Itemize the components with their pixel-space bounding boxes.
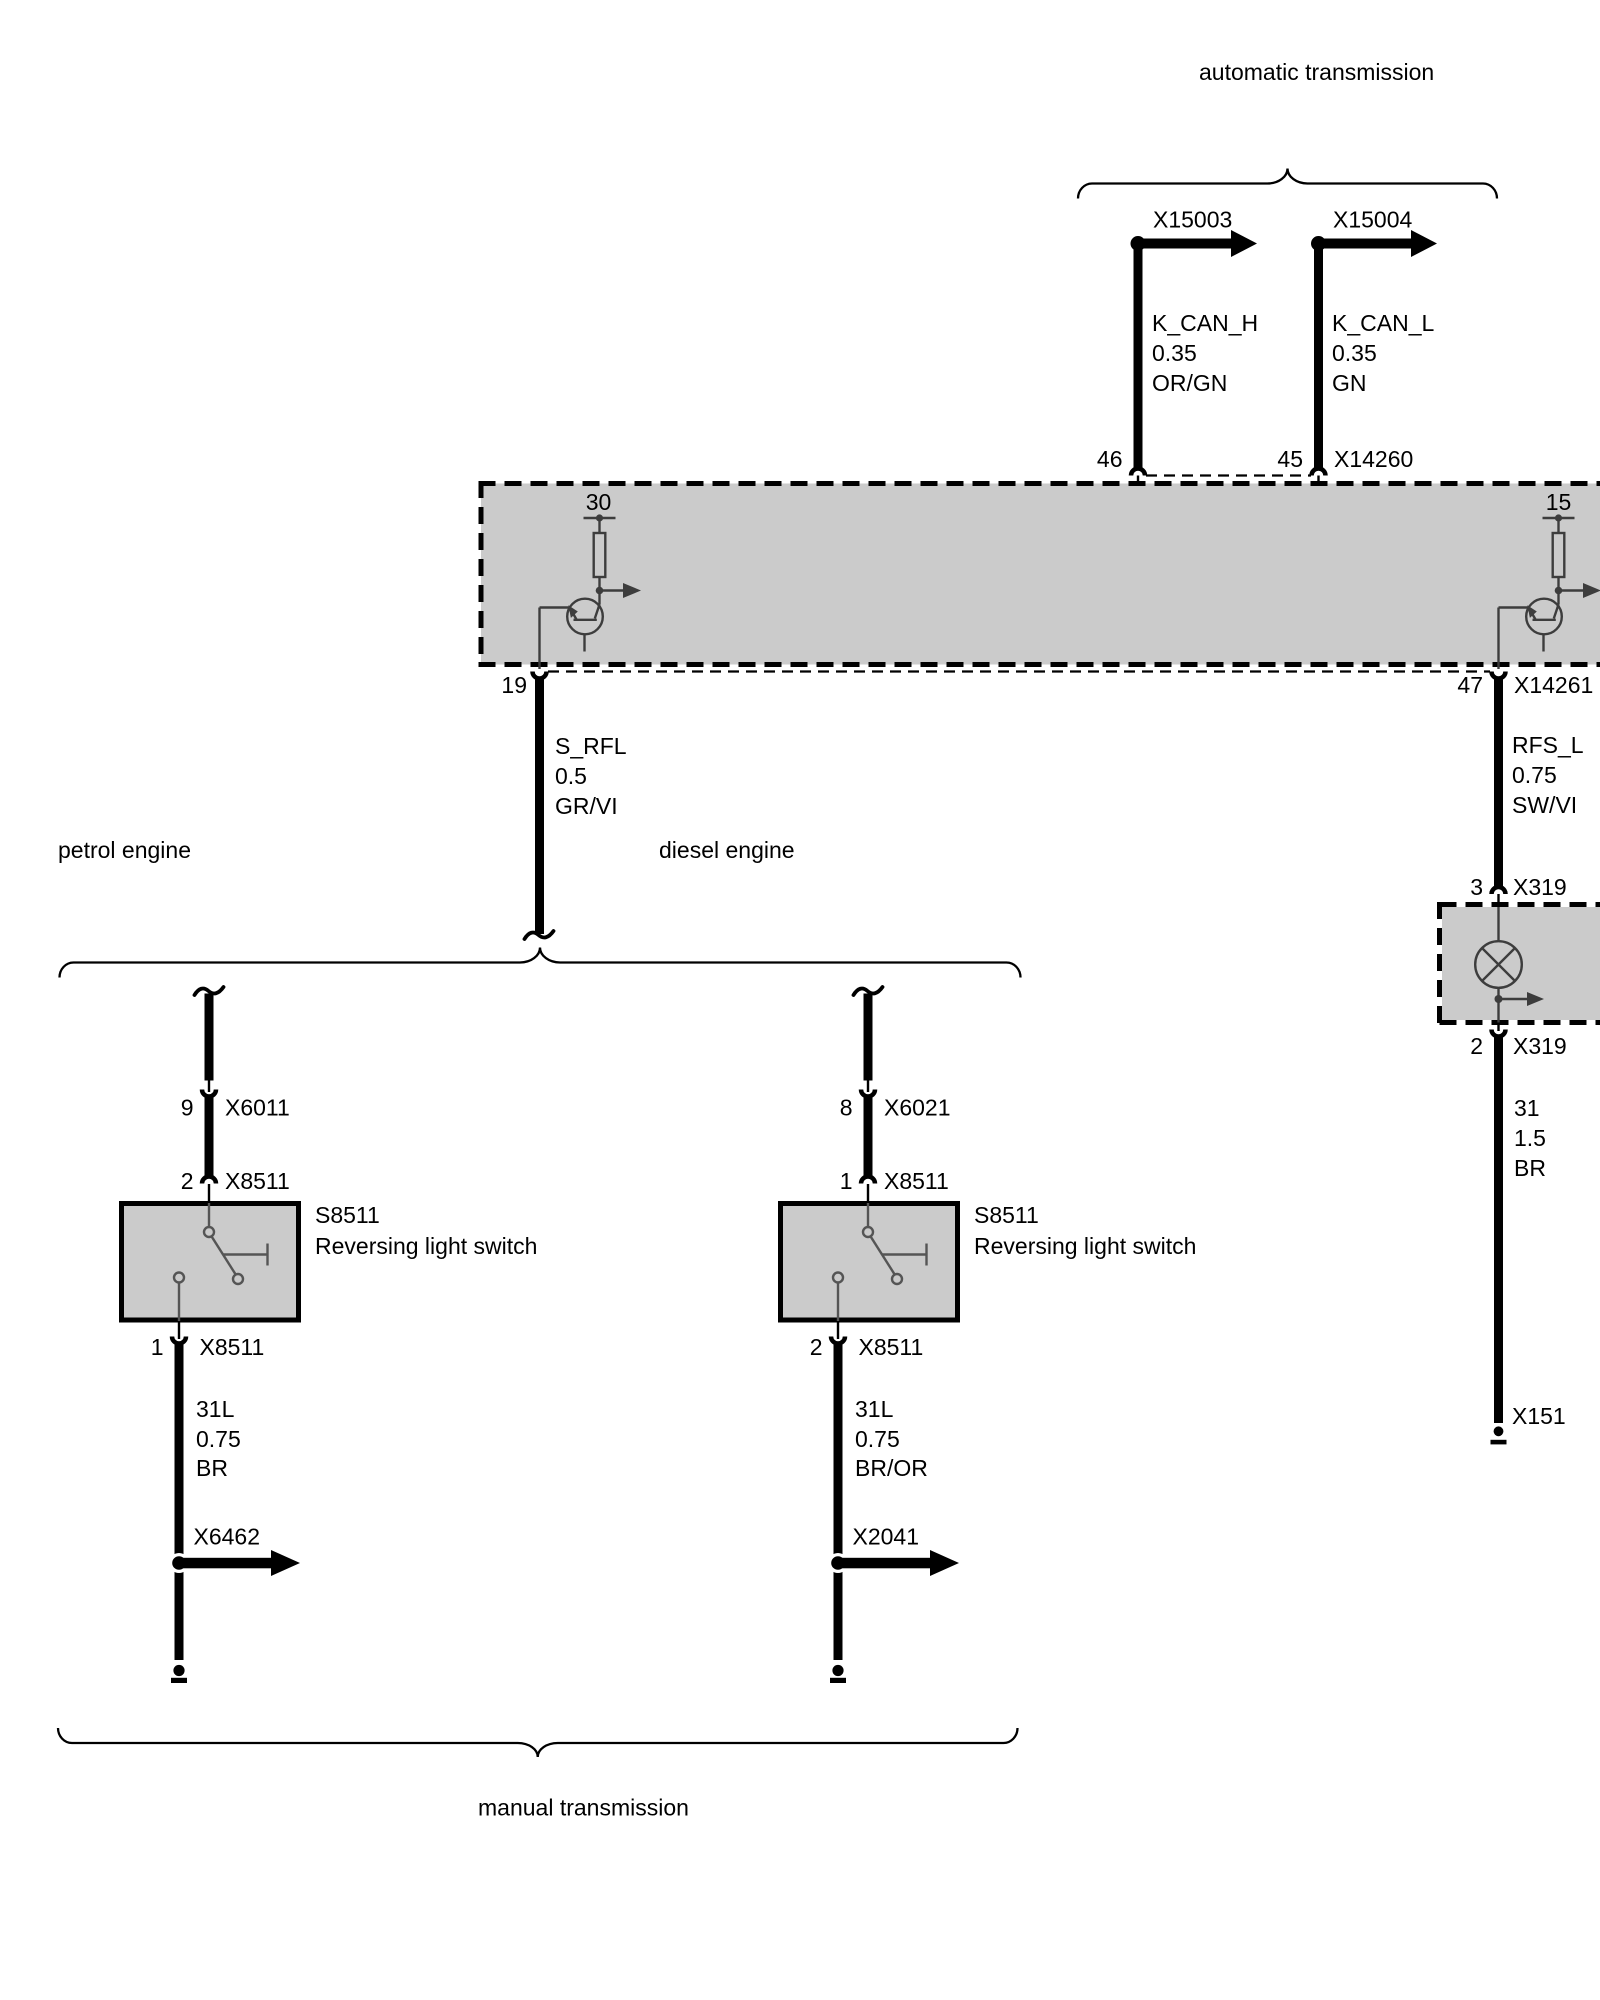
- svg-text:9: 9: [181, 1095, 194, 1121]
- svg-text:3: 3: [1470, 874, 1483, 900]
- svg-text:manual transmission: manual transmission: [478, 1795, 689, 1821]
- svg-text:X14261: X14261: [1514, 672, 1593, 698]
- svg-text:BR: BR: [1514, 1155, 1546, 1181]
- svg-text:K_CAN_H: K_CAN_H: [1152, 310, 1258, 336]
- svg-text:0.35: 0.35: [1152, 340, 1197, 366]
- svg-text:8: 8: [840, 1095, 853, 1121]
- svg-text:RFS_L: RFS_L: [1512, 732, 1584, 758]
- svg-text:S8511: S8511: [974, 1202, 1039, 1228]
- svg-text:47: 47: [1457, 672, 1483, 698]
- svg-text:31L: 31L: [855, 1396, 894, 1422]
- svg-text:X14260: X14260: [1334, 446, 1413, 472]
- svg-text:BR: BR: [196, 1455, 228, 1481]
- svg-text:45: 45: [1277, 446, 1303, 472]
- svg-text:2: 2: [810, 1334, 823, 1360]
- svg-text:petrol engine: petrol engine: [58, 837, 191, 863]
- svg-text:SW/VI: SW/VI: [1512, 792, 1577, 818]
- svg-text:X319: X319: [1513, 1033, 1567, 1059]
- svg-text:19: 19: [501, 672, 527, 698]
- svg-text:Reversing light switch: Reversing light switch: [315, 1233, 537, 1259]
- svg-text:30: 30: [586, 489, 612, 515]
- svg-text:OR/GN: OR/GN: [1152, 370, 1227, 396]
- svg-text:1: 1: [151, 1334, 164, 1360]
- svg-text:X6021: X6021: [884, 1095, 951, 1121]
- svg-text:X15003: X15003: [1153, 207, 1232, 233]
- svg-text:X8511: X8511: [884, 1168, 949, 1194]
- svg-text:31L: 31L: [196, 1396, 235, 1422]
- svg-text:X15004: X15004: [1333, 207, 1413, 233]
- svg-text:0.75: 0.75: [855, 1426, 900, 1452]
- svg-text:X8511: X8511: [200, 1334, 265, 1360]
- svg-text:2: 2: [181, 1168, 194, 1194]
- svg-text:X2041: X2041: [853, 1524, 920, 1550]
- svg-text:0.5: 0.5: [555, 763, 587, 789]
- svg-text:GR/VI: GR/VI: [555, 793, 618, 819]
- svg-text:1: 1: [840, 1168, 853, 1194]
- svg-text:X6462: X6462: [194, 1524, 261, 1550]
- svg-text:X319: X319: [1513, 874, 1567, 900]
- svg-text:1.5: 1.5: [1514, 1125, 1546, 1151]
- svg-text:BR/OR: BR/OR: [855, 1455, 928, 1481]
- svg-text:S_RFL: S_RFL: [555, 733, 627, 759]
- svg-text:K_CAN_L: K_CAN_L: [1332, 310, 1434, 336]
- svg-text:X8511: X8511: [859, 1334, 924, 1360]
- svg-text:46: 46: [1097, 446, 1123, 472]
- svg-text:automatic transmission: automatic transmission: [1199, 59, 1434, 85]
- svg-text:Reversing light switch: Reversing light switch: [974, 1233, 1196, 1259]
- svg-text:2: 2: [1470, 1033, 1483, 1059]
- svg-text:0.75: 0.75: [1512, 762, 1557, 788]
- svg-text:15: 15: [1546, 489, 1572, 515]
- svg-text:diesel engine: diesel engine: [659, 837, 795, 863]
- svg-text:0.35: 0.35: [1332, 340, 1377, 366]
- svg-text:X8511: X8511: [225, 1168, 290, 1194]
- svg-text:0.75: 0.75: [196, 1426, 241, 1452]
- svg-text:GN: GN: [1332, 370, 1367, 396]
- svg-text:X6011: X6011: [225, 1095, 290, 1121]
- svg-text:S8511: S8511: [315, 1202, 380, 1228]
- svg-text:X151: X151: [1512, 1403, 1566, 1429]
- svg-text:31: 31: [1514, 1095, 1540, 1121]
